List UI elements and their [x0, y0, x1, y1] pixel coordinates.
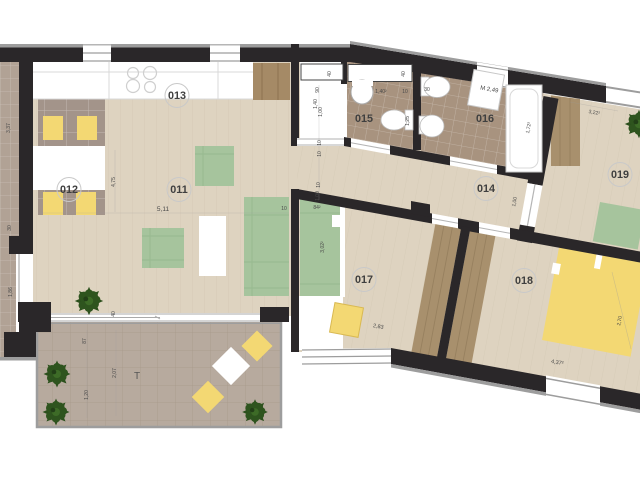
svg-text:1,86: 1,86 — [8, 287, 14, 297]
svg-text:5,11: 5,11 — [157, 206, 170, 213]
svg-text:1,00: 1,00 — [315, 191, 321, 201]
svg-text:10: 10 — [281, 206, 287, 212]
svg-text:1,40²: 1,40² — [375, 89, 387, 95]
svg-text:T: T — [134, 371, 140, 382]
svg-text:40: 40 — [111, 311, 117, 317]
svg-text:1,25: 1,25 — [405, 116, 411, 126]
svg-text:012: 012 — [60, 184, 78, 196]
svg-text:016: 016 — [476, 113, 494, 125]
svg-text:015: 015 — [355, 113, 373, 125]
svg-text:30: 30 — [7, 225, 13, 231]
svg-text:1,00: 1,00 — [318, 107, 324, 117]
svg-text:3,37: 3,37 — [6, 123, 12, 133]
svg-text:10: 10 — [317, 151, 323, 157]
svg-text:84²: 84² — [313, 205, 321, 211]
svg-text:10: 10 — [402, 89, 408, 95]
svg-text:014: 014 — [477, 183, 495, 195]
svg-text:90: 90 — [315, 87, 321, 93]
svg-text:018: 018 — [515, 275, 533, 287]
svg-text:017: 017 — [355, 274, 373, 286]
svg-text:4,75: 4,75 — [111, 177, 117, 187]
svg-text:013: 013 — [168, 90, 186, 102]
svg-text:011: 011 — [170, 184, 187, 196]
svg-text:1,20: 1,20 — [84, 390, 90, 400]
svg-text:40: 40 — [401, 71, 407, 77]
svg-text:30: 30 — [424, 87, 430, 93]
svg-text:019: 019 — [611, 169, 629, 181]
svg-text:10: 10 — [316, 182, 322, 188]
svg-text:3,02²: 3,02² — [320, 241, 326, 253]
svg-text:87: 87 — [82, 338, 88, 344]
svg-text:40: 40 — [327, 71, 333, 77]
svg-text:2,07: 2,07 — [112, 368, 118, 378]
svg-text:10: 10 — [317, 140, 323, 146]
